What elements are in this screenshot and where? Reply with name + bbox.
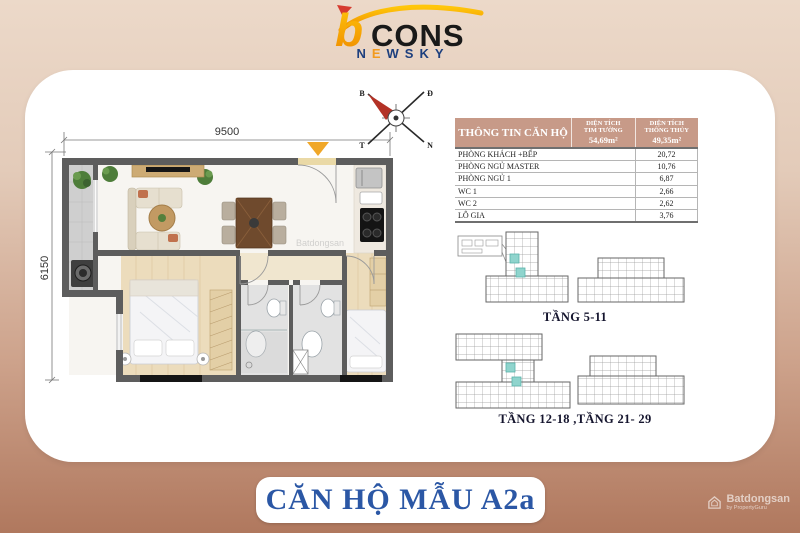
dim-width-label: 9500 bbox=[215, 126, 239, 138]
fridge bbox=[356, 168, 382, 188]
table-row: WC 2 2,62 bbox=[455, 198, 698, 210]
plant bbox=[102, 166, 118, 182]
newsky-letter: W bbox=[387, 46, 399, 61]
table-row: PHÒNG NGỦ MASTER 10,76 bbox=[455, 161, 698, 173]
unit-name: CĂN HỘ MẪU A2a bbox=[266, 483, 536, 517]
newsky-letter: K bbox=[419, 46, 428, 61]
newsky-letter: Y bbox=[435, 46, 444, 61]
floor-diagram-tang-12-29 bbox=[450, 330, 700, 410]
col-thong-thuy: DIỆN TÍCH THÔNG THỦY 49,35m² bbox=[635, 118, 698, 147]
tv bbox=[146, 167, 190, 172]
newsky-letter: E bbox=[372, 46, 381, 61]
stove bbox=[360, 208, 384, 242]
watermark-brand: Batdongsan bbox=[726, 494, 790, 505]
newsky-letter: S bbox=[405, 46, 414, 61]
floor-diagram-tang-5-11 bbox=[450, 230, 700, 308]
table-header: THÔNG TIN CĂN HỘ DIỆN TÍCH TIM TƯỜNG 54,… bbox=[455, 118, 698, 149]
logo-newsky: NEWSKY bbox=[353, 46, 446, 61]
highlighted-unit bbox=[506, 363, 515, 372]
unit-callout bbox=[458, 236, 512, 272]
master-bed bbox=[119, 280, 209, 365]
compass-label-west: T bbox=[359, 141, 365, 150]
compass-label-east: Đ bbox=[427, 89, 433, 98]
plant bbox=[73, 171, 91, 189]
batdongsan-watermark: Batdongsan by PropertyGuru bbox=[707, 494, 790, 512]
brand-logo: b CONS NEWSKY bbox=[0, 2, 800, 61]
kitchen-sink bbox=[360, 192, 382, 204]
bedroom1-wardrobe bbox=[370, 258, 386, 306]
table-row: PHÒNG KHÁCH +BẾP 20,72 bbox=[455, 149, 698, 161]
table-row: LÔ GIA 3,76 bbox=[455, 210, 698, 223]
table-row: PHÒNG NGỦ 1 6,87 bbox=[455, 173, 698, 185]
house-icon bbox=[707, 495, 722, 510]
floor-range-label-1: TẦNG 5-11 bbox=[450, 310, 700, 325]
floor-plate bbox=[456, 334, 684, 408]
col-tim-tuong: DIỆN TÍCH TIM TƯỜNG 54,69m² bbox=[571, 118, 634, 147]
apartment-info-table: THÔNG TIN CĂN HỘ DIỆN TÍCH TIM TƯỜNG 54,… bbox=[455, 118, 698, 223]
table-title: THÔNG TIN CĂN HỘ bbox=[455, 118, 571, 147]
highlighted-unit bbox=[510, 254, 519, 263]
compass-label-south: N bbox=[427, 141, 433, 150]
master-wardrobe bbox=[210, 290, 232, 370]
poster: b CONS NEWSKY 9500 6150 bbox=[0, 0, 800, 533]
entrance-arrow-icon bbox=[307, 142, 329, 156]
highlighted-unit bbox=[512, 377, 521, 386]
floor-plate bbox=[486, 232, 684, 302]
compass-label-north: B bbox=[359, 89, 365, 98]
floor-range-label-2: TẦNG 12-18 ,TẦNG 21- 29 bbox=[450, 412, 700, 427]
kitchen bbox=[354, 165, 386, 253]
highlighted-unit bbox=[516, 268, 525, 277]
dim-height-label: 6150 bbox=[40, 256, 51, 280]
logo-b: b bbox=[335, 4, 363, 50]
compass-icon: B Đ T N bbox=[352, 84, 438, 150]
table-row: WC 1 2,66 bbox=[455, 186, 698, 198]
watermark-sub: by PropertyGuru bbox=[726, 506, 790, 512]
bcons-logo-mark: b CONS bbox=[315, 2, 485, 50]
content-card: 9500 6150 bbox=[25, 70, 775, 462]
plan-watermark: Batdongsan bbox=[296, 238, 344, 248]
unit-name-banner: CĂN HỘ MẪU A2a bbox=[256, 477, 545, 523]
newsky-letter: N bbox=[356, 46, 365, 61]
